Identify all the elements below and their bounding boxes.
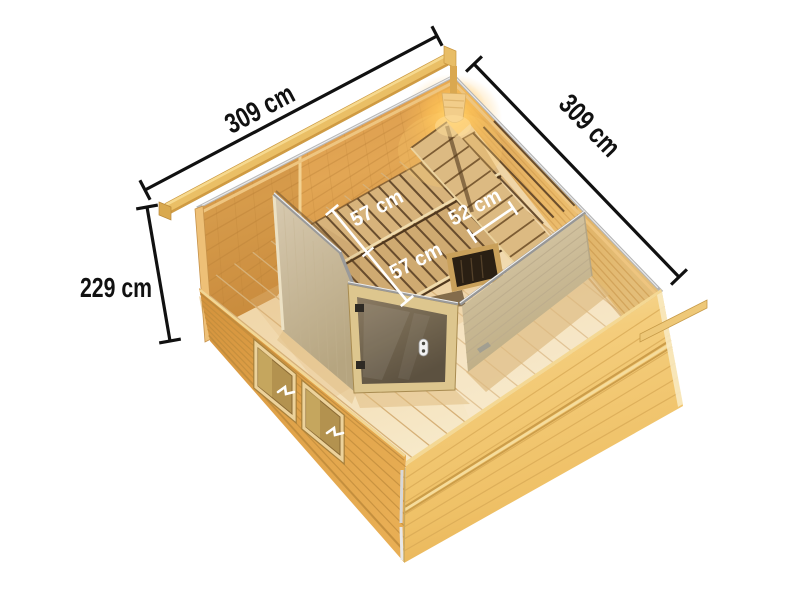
svg-text:229 cm: 229 cm [80, 272, 152, 303]
